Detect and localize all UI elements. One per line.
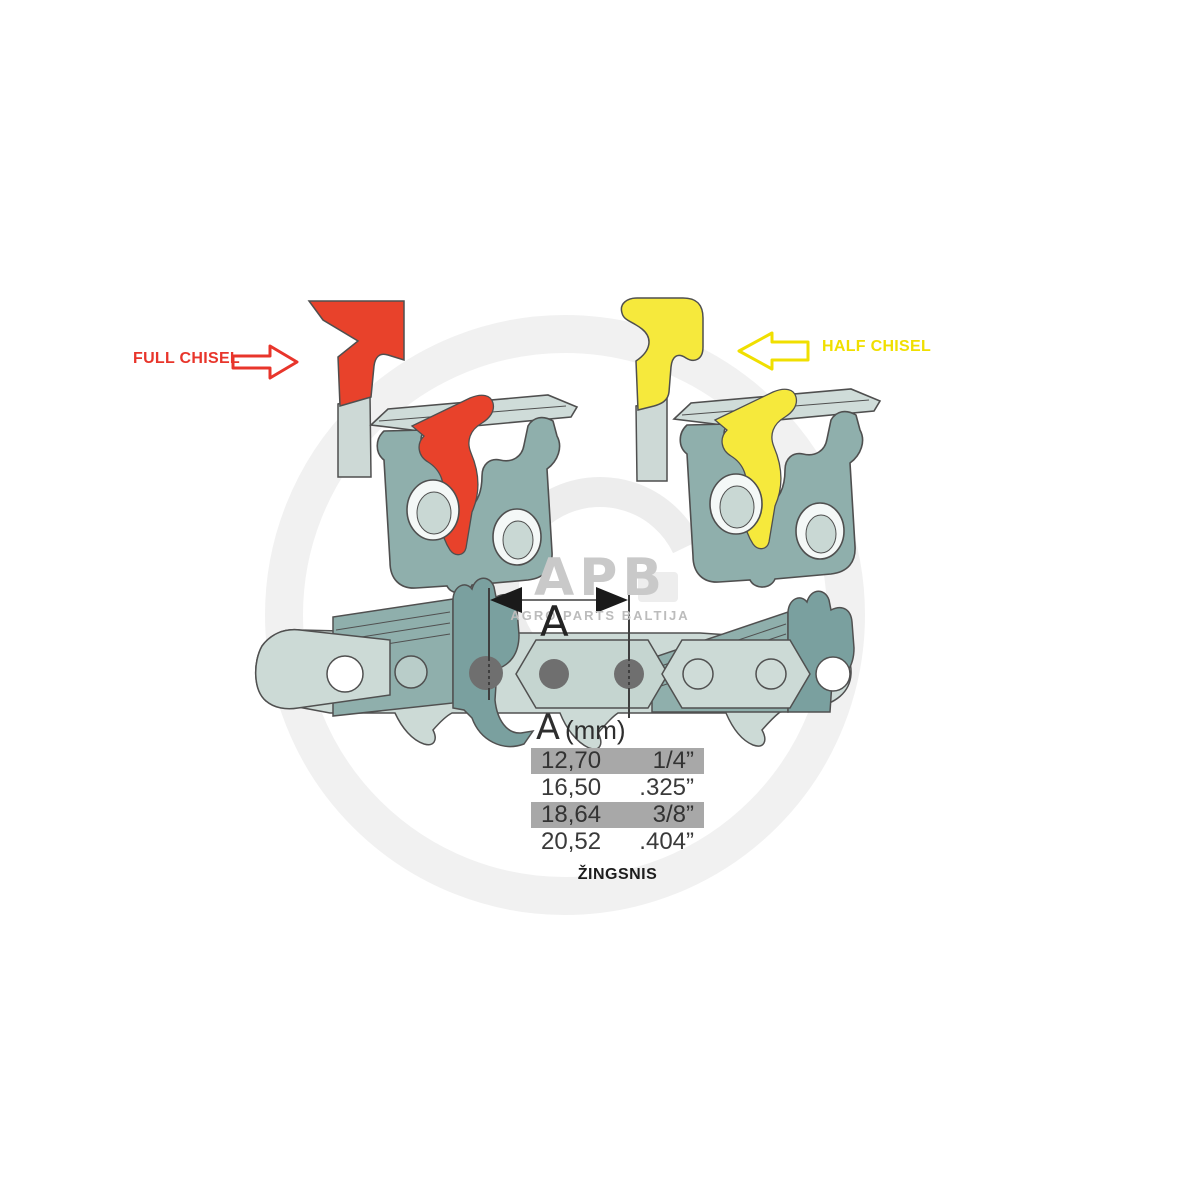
table-row: 12,70 1/4” [531, 748, 704, 774]
table-row: 16,50 .325” [531, 775, 704, 801]
full-chisel-label: FULL CHISEL [133, 350, 240, 368]
strap-hole [756, 659, 786, 689]
half-chisel-label: HALF CHISEL [822, 338, 931, 356]
pitch-mm-value: 18,64 [541, 801, 601, 829]
pitch-inch-value: .404” [639, 828, 694, 856]
watermark-subtitle: AGRO PARTS BALTIJA [510, 608, 690, 623]
half-chisel-shank [636, 398, 667, 481]
table-row: 18,64 3/8” [531, 802, 704, 828]
pitch-table-header-symbol: A [536, 708, 560, 748]
strap-hole [327, 656, 363, 692]
full-chisel-shank [338, 395, 371, 477]
pitch-mm-value: 16,50 [541, 774, 601, 802]
strap-hole [816, 657, 850, 691]
chainsaw-chain-pitch-diagram: APB AGRO PARTS BALTIJA FULL CHISEL HALF … [0, 0, 1188, 1188]
pitch-table: 12,70 1/4” 16,50 .325” 18,64 3/8” 20,52 … [531, 748, 704, 856]
full-chisel-arrow-icon [233, 346, 297, 378]
pitch-table-header-unit: (mm) [565, 715, 626, 745]
pitch-mm-value: 20,52 [541, 828, 601, 856]
half-chisel-cutter-3d [674, 389, 880, 587]
strap-hole [395, 656, 427, 688]
pitch-dimension-label: A [540, 597, 569, 646]
pitch-inch-value: 3/8” [653, 801, 694, 829]
pitch-table-caption: ŽINGSNIS [531, 866, 704, 884]
chain-tie-strap [516, 640, 668, 708]
pitch-inch-value: 1/4” [653, 747, 694, 775]
pitch-inch-value: .325” [639, 774, 694, 802]
rivet [539, 659, 569, 689]
table-row: 20,52 .404” [531, 829, 704, 855]
pitch-mm-value: 12,70 [541, 747, 601, 775]
strap-hole [683, 659, 713, 689]
rivet [469, 656, 503, 690]
chain-end-strap [256, 630, 390, 709]
pitch-table-header: A(mm) [536, 708, 626, 748]
half-chisel-arrow-icon [739, 333, 808, 369]
